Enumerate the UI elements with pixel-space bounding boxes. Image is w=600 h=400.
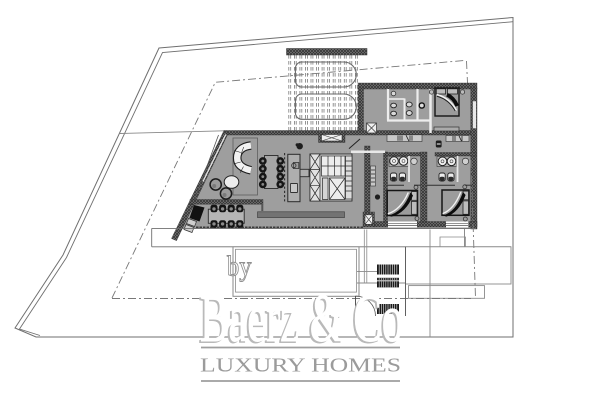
svg-text:LUXURY HOMES: LUXURY HOMES — [200, 355, 401, 377]
svg-text:by: by — [227, 251, 252, 283]
svg-text:Baerz & Co: Baerz & Co — [200, 280, 403, 356]
